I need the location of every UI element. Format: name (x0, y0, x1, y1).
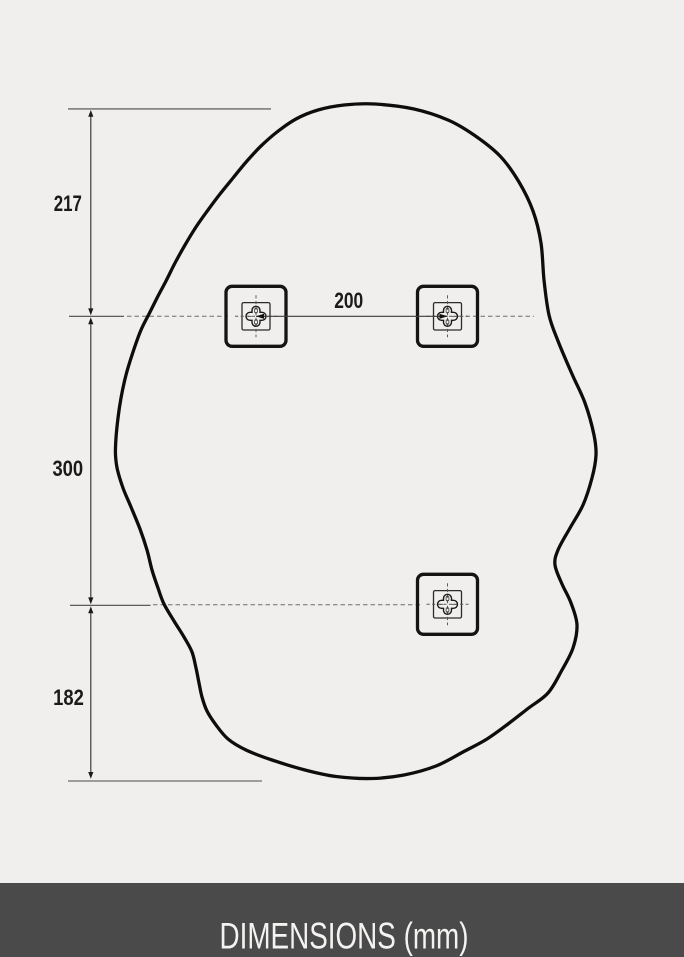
svg-text:DIMENSIONS (mm): DIMENSIONS (mm) (220, 915, 469, 956)
svg-text:217: 217 (54, 191, 82, 216)
svg-text:300: 300 (52, 456, 83, 481)
svg-text:200: 200 (334, 288, 363, 313)
svg-text:182: 182 (53, 685, 84, 710)
